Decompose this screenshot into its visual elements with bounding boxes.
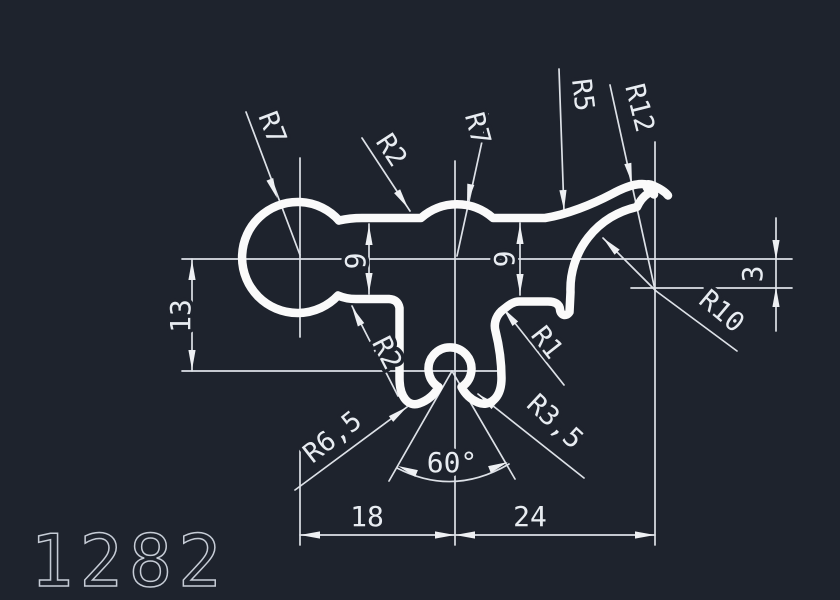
- arrowhead: [624, 163, 632, 183]
- cad-viewport[interactable]: R7 R2 R7 R5 R12 R10 R2 R1 R6,5 R3,5 13 9…: [0, 0, 840, 600]
- arrowhead: [559, 190, 566, 210]
- dim-label-18: 18: [350, 500, 384, 533]
- arrowhead: [455, 531, 475, 538]
- radius-label-r6-5: R6,5: [298, 405, 368, 469]
- radius-label-r3-5: R3,5: [520, 388, 589, 455]
- drawing-number: 1282: [30, 519, 227, 600]
- arrowhead: [635, 531, 655, 538]
- arrowhead: [772, 287, 779, 307]
- arrowhead: [516, 274, 523, 294]
- radius-label-r5: R5: [565, 77, 600, 113]
- radius-label-r7-center: R7: [458, 109, 496, 148]
- arrowhead: [188, 350, 195, 370]
- arrowhead: [488, 462, 508, 473]
- arrowhead: [365, 225, 372, 245]
- arrowhead: [467, 184, 474, 204]
- dimension-labels: R7 R2 R7 R5 R12 R10 R2 R1 R6,5 R3,5 13 9…: [164, 77, 769, 533]
- dim-label-3: 3: [736, 266, 769, 283]
- dim-label-9-right: 9: [488, 251, 521, 268]
- cad-canvas[interactable]: R7 R2 R7 R5 R12 R10 R2 R1 R6,5 R3,5 13 9…: [0, 0, 840, 600]
- arrowhead: [516, 224, 523, 244]
- arrowhead: [300, 531, 320, 538]
- arrowhead: [772, 240, 779, 260]
- dim-label-9-left: 9: [339, 253, 372, 270]
- dim-label-24: 24: [513, 500, 547, 533]
- arrowhead: [398, 466, 418, 477]
- radius-label-r2-top: R2: [369, 128, 413, 172]
- profile-lower-contour: [242, 194, 648, 405]
- arrowhead: [435, 531, 455, 538]
- dim-label-13: 13: [164, 299, 197, 333]
- arrowhead: [188, 260, 195, 280]
- arrowhead: [389, 407, 407, 422]
- radius-label-r1: R1: [524, 320, 568, 365]
- arrowhead: [365, 273, 372, 293]
- angle-label-60: 60°: [427, 446, 478, 479]
- leader-r5: [559, 69, 564, 211]
- arrowhead: [352, 307, 364, 326]
- dimension-arrowheads: [188, 163, 779, 539]
- arrowhead: [394, 189, 408, 208]
- radius-label-r10: R10: [693, 284, 750, 339]
- radius-label-r12: R12: [618, 81, 660, 136]
